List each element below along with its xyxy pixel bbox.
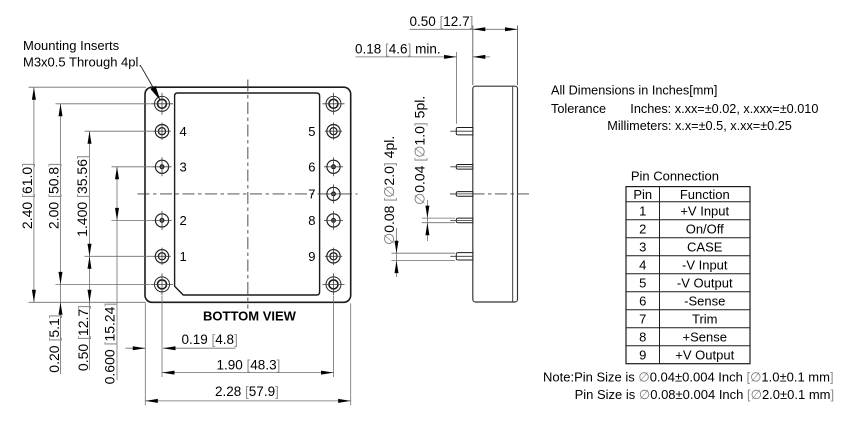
svg-text:-V Output: -V Output: [677, 275, 733, 290]
svg-text:0.18 [4.6] min.: 0.18 [4.6] min.: [355, 42, 441, 57]
svg-text:0.50 [12.7]: 0.50 [12.7]: [410, 14, 474, 29]
svg-text:M3x0.5 Through 4pl.: M3x0.5 Through 4pl.: [23, 55, 142, 70]
svg-text:6: 6: [639, 293, 646, 308]
svg-text:-V Input: -V Input: [682, 257, 728, 272]
svg-text:∅0.04 [∅1.0] 5pl.: ∅0.04 [∅1.0] 5pl.: [412, 96, 428, 205]
svg-text:5: 5: [639, 275, 646, 290]
svg-text:-Sense: -Sense: [684, 293, 725, 308]
svg-text:9: 9: [639, 347, 646, 362]
svg-text:CASE: CASE: [687, 239, 723, 254]
svg-text:Pin Connection: Pin Connection: [631, 169, 719, 184]
svg-text:8: 8: [639, 329, 646, 344]
svg-text:Tolerance: Tolerance: [551, 102, 606, 116]
svg-text:7: 7: [308, 187, 315, 202]
svg-text:On/Off: On/Off: [686, 221, 724, 236]
svg-text:All Dimensions in Inches[mm]: All Dimensions in Inches[mm]: [551, 83, 717, 97]
svg-text:2: 2: [180, 213, 187, 228]
svg-text:Pin: Pin: [633, 187, 652, 202]
svg-text:BOTTOM VIEW: BOTTOM VIEW: [203, 308, 297, 323]
svg-text:1.400 [35.56]: 1.400 [35.56]: [74, 155, 90, 237]
svg-text:Mounting Inserts: Mounting Inserts: [23, 38, 120, 53]
svg-text:0.20 [5.1]: 0.20 [5.1]: [46, 314, 62, 372]
svg-text:Inches: x.xx=±0.02, x.xxx=±0.0: Inches: x.xx=±0.02, x.xxx=±0.010: [630, 102, 818, 116]
svg-text:3: 3: [639, 239, 646, 254]
svg-text:4: 4: [180, 124, 187, 139]
svg-text:0.50 [12.7]: 0.50 [12.7]: [75, 305, 91, 371]
svg-text:1.90 [48.3]: 1.90 [48.3]: [217, 358, 281, 373]
svg-text:7: 7: [639, 311, 646, 326]
svg-text:9: 9: [308, 249, 315, 264]
svg-text:5: 5: [308, 124, 315, 139]
svg-text:2: 2: [639, 221, 646, 236]
svg-text:Trim: Trim: [692, 311, 718, 326]
svg-text:Millimeters: x.x=±0.5, x.xx=±0: Millimeters: x.x=±0.5, x.xx=±0.25: [607, 119, 792, 133]
svg-text:+V Output: +V Output: [675, 347, 734, 362]
svg-text:Pin Size is ∅0.08±0.004 Inch [: Pin Size is ∅0.08±0.004 Inch [∅2.0±0.1 m…: [575, 387, 835, 402]
svg-text:+V Input: +V Input: [680, 203, 729, 218]
svg-text:∅0.08 [∅2.0] 4pl.: ∅0.08 [∅2.0] 4pl.: [381, 136, 397, 245]
svg-text:4: 4: [639, 257, 646, 272]
svg-text:2.40 [61.0]: 2.40 [61.0]: [19, 163, 35, 229]
svg-text:3: 3: [180, 160, 187, 175]
svg-text:+Sense: +Sense: [683, 329, 727, 344]
svg-text:2.28 [57.9]: 2.28 [57.9]: [215, 384, 279, 399]
svg-text:0.19 [4.8]: 0.19 [4.8]: [182, 332, 238, 347]
svg-text:2.00 [50.8]: 2.00 [50.8]: [45, 163, 61, 229]
svg-text:0.600 [15.24]: 0.600 [15.24]: [102, 303, 118, 385]
svg-text:Function: Function: [680, 187, 730, 202]
svg-text:8: 8: [308, 213, 315, 228]
svg-text:6: 6: [308, 160, 315, 175]
svg-text:Note:Pin Size is ∅0.04±0.004 I: Note:Pin Size is ∅0.04±0.004 Inch [∅1.0±…: [543, 370, 834, 385]
svg-text:1: 1: [180, 249, 187, 264]
svg-text:1: 1: [639, 203, 646, 218]
